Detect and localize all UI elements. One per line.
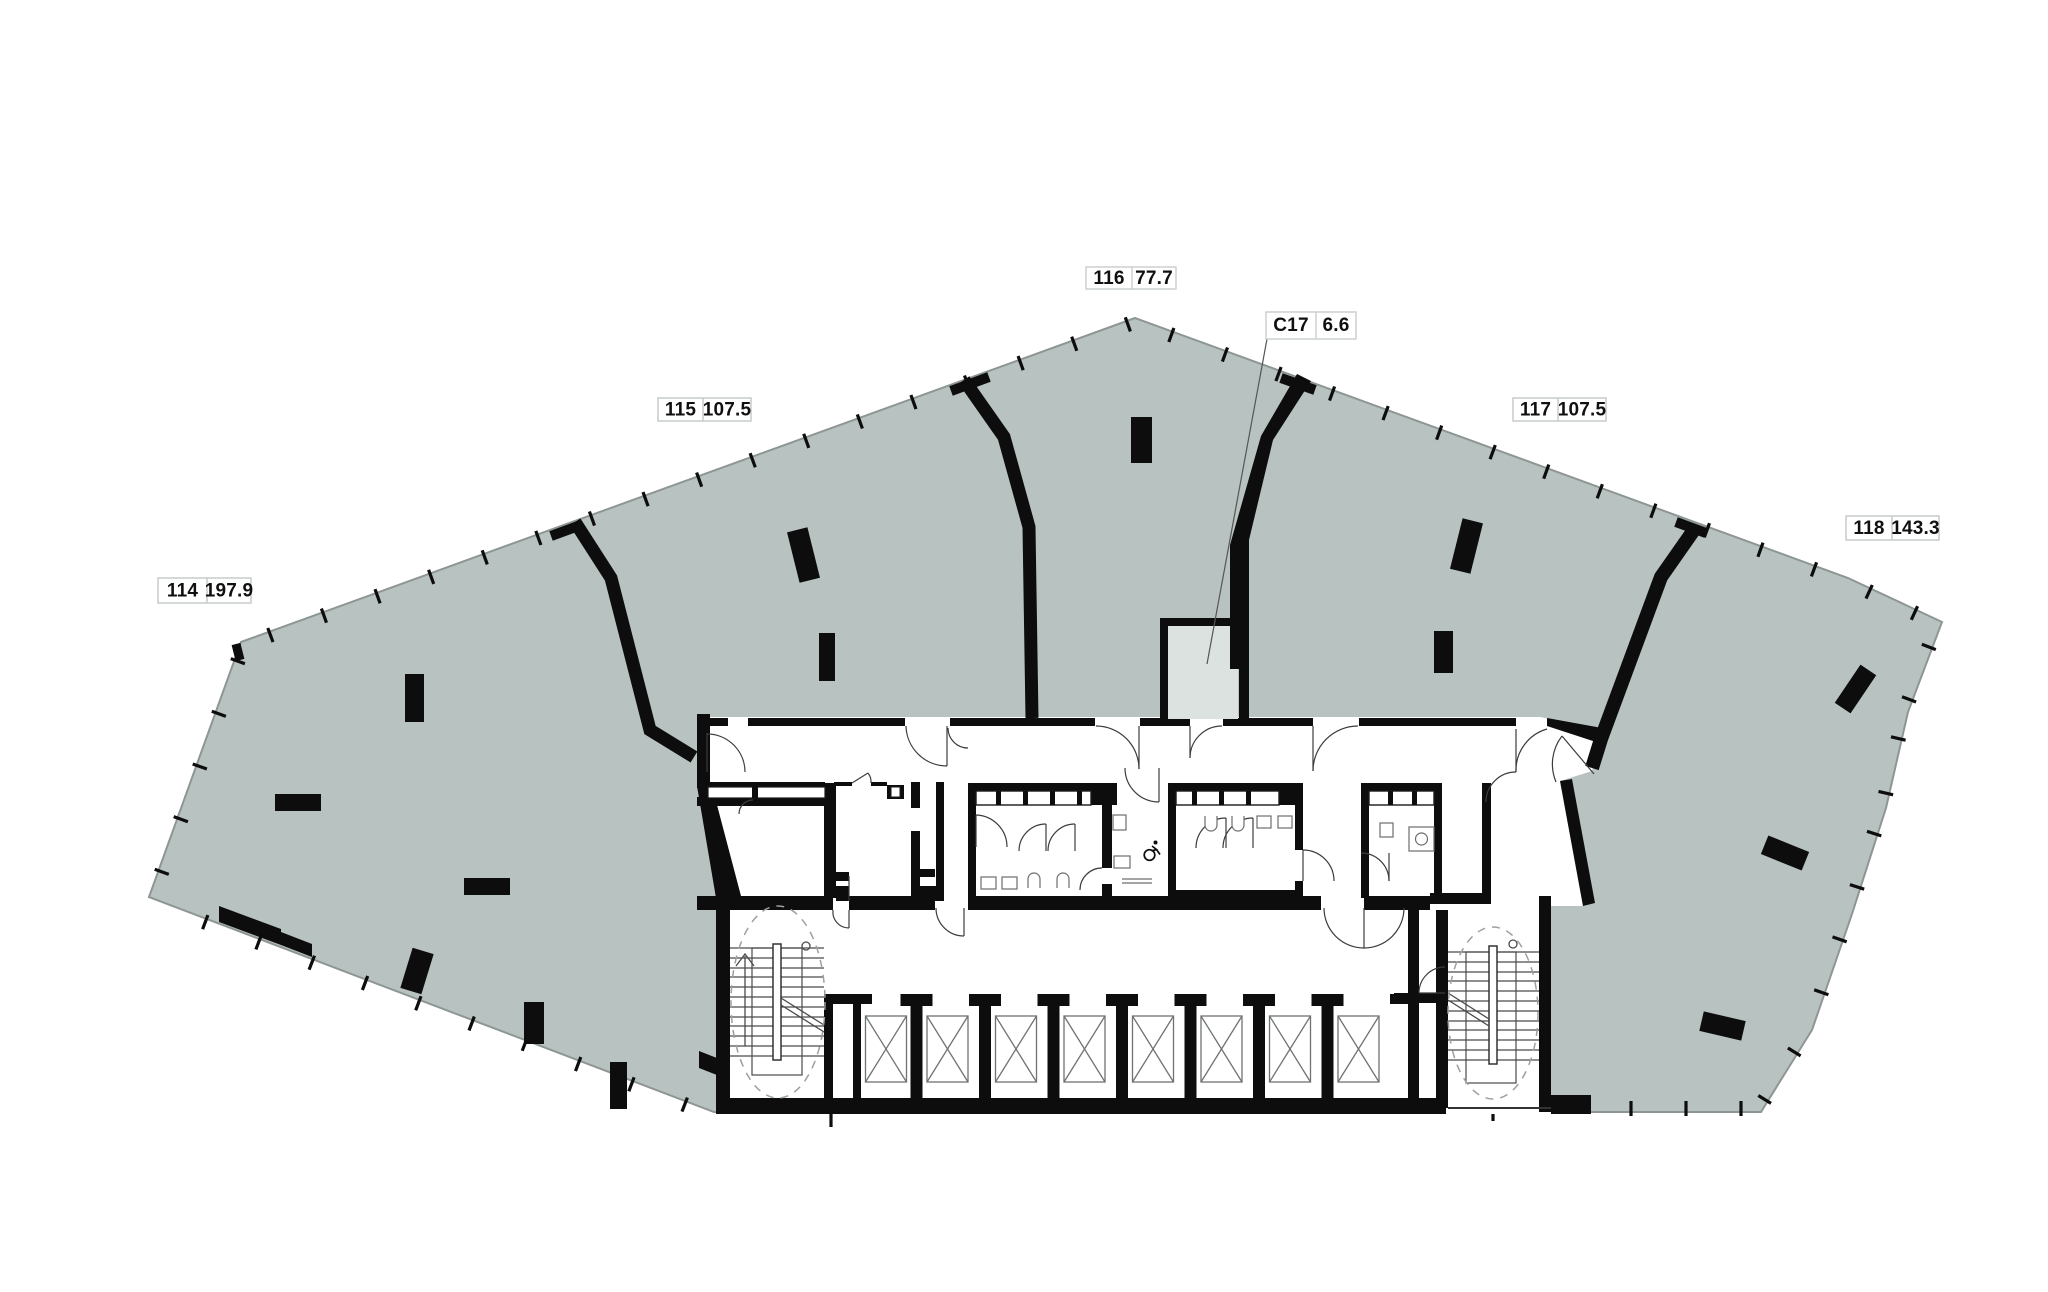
svg-text:118: 118	[1853, 518, 1884, 539]
svg-text:114: 114	[167, 581, 198, 602]
svg-text:117: 117	[1520, 400, 1551, 421]
svg-text:115: 115	[665, 400, 696, 421]
svg-text:143.3: 143.3	[1891, 518, 1940, 539]
svg-text:116: 116	[1093, 268, 1124, 289]
svg-text:C17: C17	[1273, 315, 1308, 336]
svg-text:107.5: 107.5	[703, 400, 752, 421]
svg-text:197.9: 197.9	[205, 581, 254, 602]
svg-text:6.6: 6.6	[1322, 315, 1349, 336]
svg-text:77.7: 77.7	[1135, 268, 1173, 289]
svg-text:107.5: 107.5	[1558, 400, 1607, 421]
